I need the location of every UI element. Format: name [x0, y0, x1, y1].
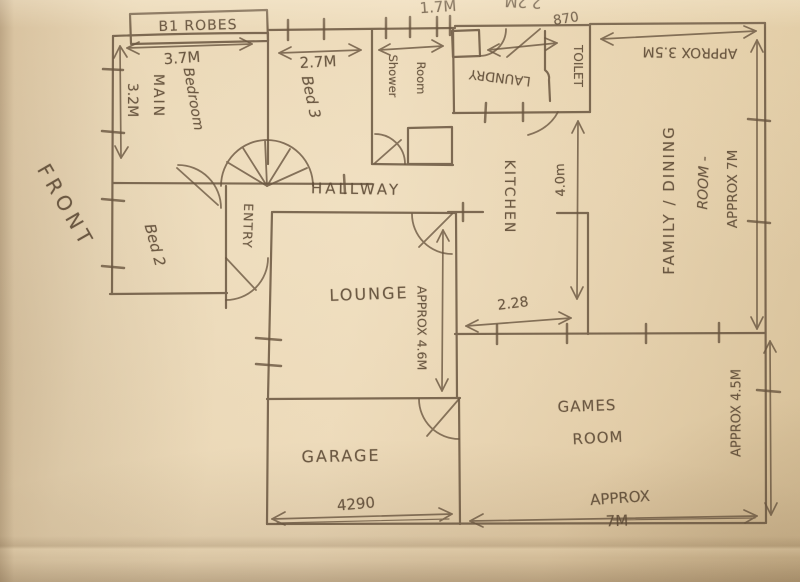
dim-games-depth: APPROX 4.5M: [730, 369, 745, 457]
dim-arrow-1-7m: [379, 40, 443, 55]
dim-bed3-width: 2.7M: [299, 52, 337, 72]
family-dining-name-line2: ROOM -: [695, 156, 713, 210]
shower-cubicle: [408, 127, 452, 164]
kitchen-name: KITCHEN: [501, 160, 517, 235]
window-ticks: [102, 16, 780, 392]
garage-door-leaf: [427, 399, 459, 436]
entry-name: ENTRY: [240, 203, 257, 249]
dim-main-bedroom-depth: 3.2M: [124, 83, 140, 117]
main-bedroom-name-line1: MAIN: [150, 74, 166, 118]
dim-family-width: APPROX 3.5M: [643, 43, 738, 61]
laundry-door-leaf: [507, 29, 540, 57]
dim-arrow-family-7m: [751, 40, 763, 329]
dimension-arrows: [114, 26, 777, 527]
toilet-name: TOILET: [571, 45, 585, 87]
lounge-name: LOUNGE: [329, 283, 409, 305]
dim-lounge-depth: APPROX 4.6M: [415, 286, 430, 371]
floorplan-photo: FRONT B1 ROBES 3.7M MAIN Bedroom 3.2M 2.…: [0, 0, 800, 582]
laundry-cupboard: [452, 30, 480, 57]
dim-arrow-2-28: [466, 312, 571, 332]
shower-room-name-line1: Shower: [386, 55, 400, 98]
dim-arrow-4-0m: [571, 121, 584, 299]
hallway-name: HALLWAY: [311, 179, 401, 199]
bed2-door-leaf: [177, 168, 218, 205]
dim-arrow-3-5m: [601, 26, 756, 45]
toilet-door-leaf: [528, 112, 558, 135]
shower-room-name-line2: Room: [414, 62, 428, 95]
garage-name: GARAGE: [301, 446, 380, 466]
shower-door-leaf: [375, 140, 401, 163]
lounge-door-leaf: [419, 214, 452, 247]
family-dining-name-line1: FAMILY / DINING: [660, 125, 678, 274]
front-door-leaf: [226, 258, 256, 290]
dim-garage-width: 4290: [336, 493, 376, 514]
games-room-name-line1: GAMES: [557, 396, 616, 416]
dim-top-1-7m: 1.7M: [419, 0, 457, 17]
dim-kitchen-depth: 4.0m: [553, 163, 569, 197]
games-room-name-line2: ROOM: [572, 428, 624, 449]
dim-games-width-line2: 7M: [605, 512, 628, 531]
robes-label: B1 ROBES: [158, 17, 237, 35]
dim-top-2-2m: 2.2M: [504, 0, 542, 12]
family-dining-name-line3: APPROX 7M: [725, 150, 741, 228]
